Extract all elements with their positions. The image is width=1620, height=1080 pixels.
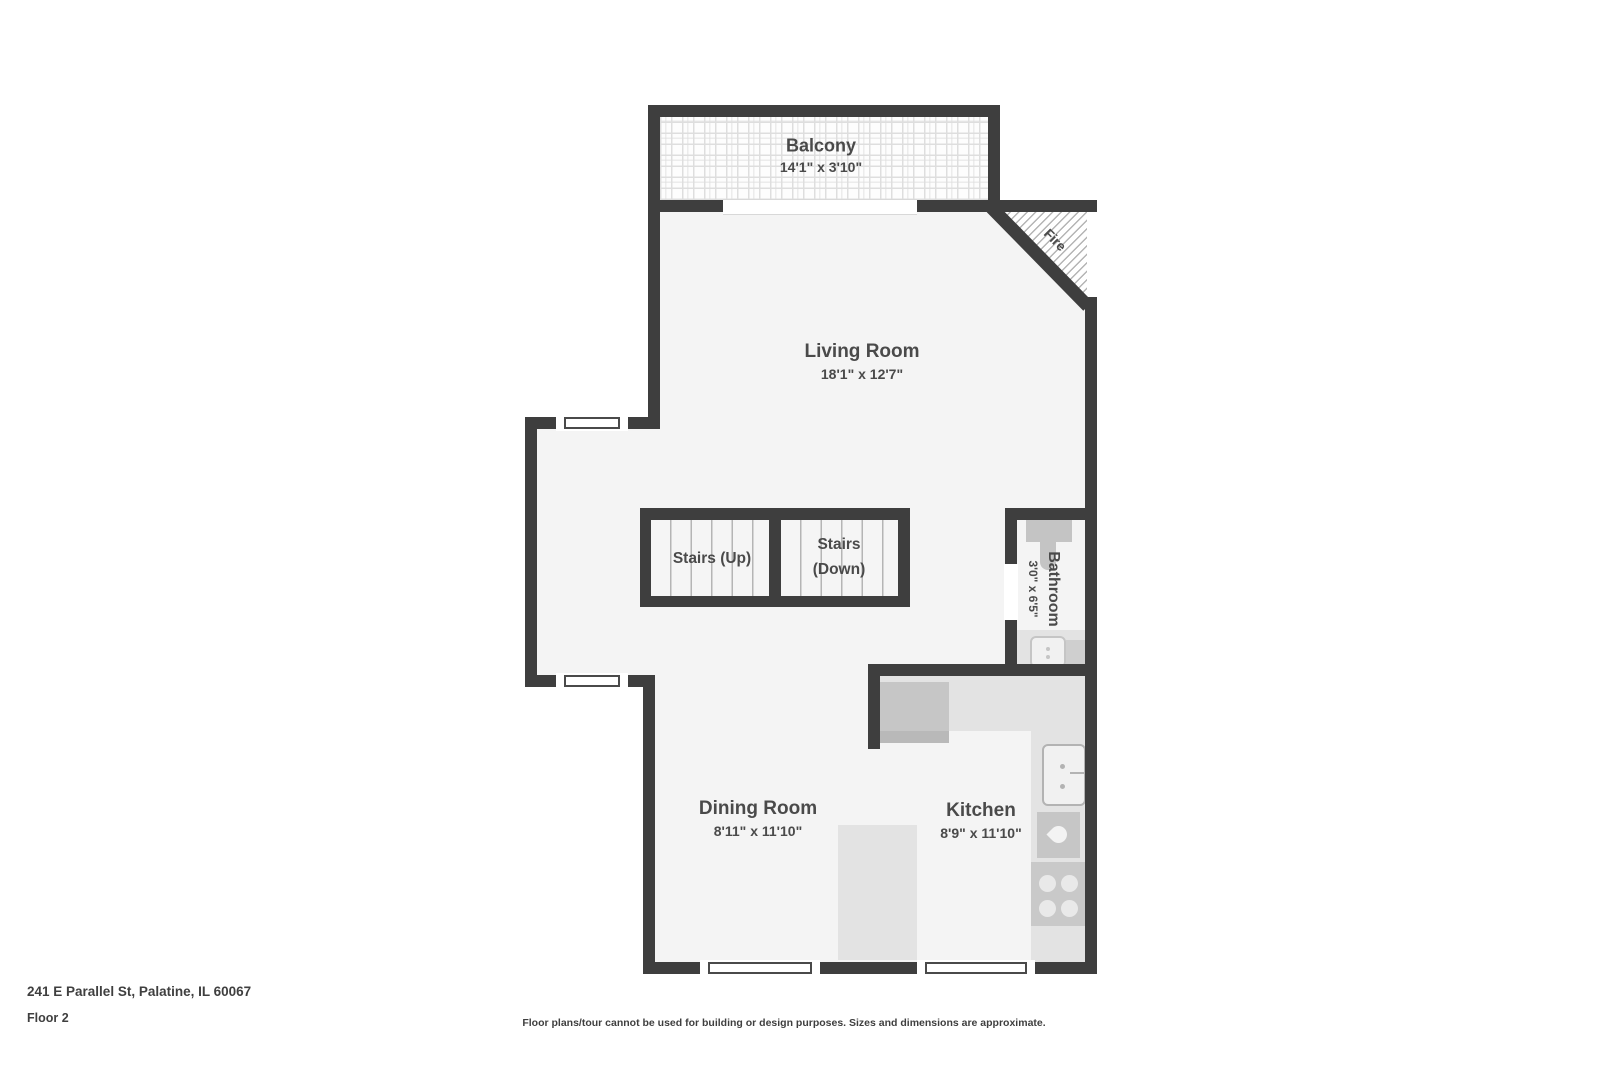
living-room-dimensions: 18'1" x 12'7" — [821, 366, 903, 382]
window-kitchen-bottom — [917, 960, 1035, 976]
dishwasher-icon — [1037, 812, 1080, 858]
stairs-up-label: Stairs (Up) — [673, 550, 751, 568]
bathroom-left-wall-lower — [1005, 619, 1017, 676]
bathroom-label: Bathroom — [1044, 551, 1062, 627]
living-room-label: Living Room — [804, 341, 919, 363]
bathroom-top-wall — [1005, 508, 1097, 520]
stairs-divider-wall — [769, 508, 781, 607]
disclaimer-text: Floor plans/tour cannot be used for buil… — [522, 1017, 1045, 1029]
stove-icon — [1031, 862, 1085, 926]
bathroom-door-opening — [1004, 564, 1018, 620]
kitchen-bathroom-divider-wall — [868, 664, 1097, 676]
kitchen-entry-wall — [868, 664, 880, 749]
balcony-top-wall — [648, 105, 1000, 117]
dining-room-label: Dining Room — [699, 798, 817, 820]
kitchen-dimensions: 8'9" x 11'10" — [940, 825, 1021, 841]
kitchen-island — [838, 825, 917, 960]
bathroom-cabinet-icon — [1066, 640, 1085, 664]
right-wall — [1085, 297, 1097, 974]
stairs-left-wall — [640, 508, 651, 607]
dining-room-dimensions: 8'11" x 11'10" — [714, 823, 802, 839]
balcony-label: Balcony — [786, 136, 856, 157]
bathroom-left-wall-upper — [1005, 508, 1017, 565]
stairs-down-label: Stairs (Down) — [796, 533, 882, 583]
floor-label: Floor 2 — [27, 1011, 69, 1025]
balcony-right-wall — [988, 105, 1000, 212]
bathroom-dimensions: 3'0" x 6'5" — [1026, 560, 1040, 617]
window-left-lower — [556, 673, 628, 689]
window-dining-bottom — [700, 960, 820, 976]
fridge-icon — [880, 682, 949, 731]
fridge-shelf-icon — [880, 731, 949, 743]
balcony-door-opening — [723, 199, 917, 215]
balcony-dimensions: 14'1" x 3'10" — [780, 159, 862, 175]
floor-plan-page: Balcony 14'1" x 3'10" Living Room 18'1" … — [0, 0, 1620, 1080]
kitchen-label: Kitchen — [946, 800, 1016, 822]
bathroom-sink-icon — [1026, 520, 1072, 542]
kitchen-sink-icon — [1042, 744, 1086, 806]
balcony-left-wall — [648, 105, 660, 212]
dining-left-wall — [643, 675, 655, 974]
property-address: 241 E Parallel St, Palatine, IL 60067 — [27, 984, 251, 999]
stairs-right-wall — [898, 508, 910, 607]
left-mid-wall — [525, 417, 537, 687]
window-left-upper — [556, 415, 628, 431]
living-room-left-wall — [648, 200, 660, 429]
